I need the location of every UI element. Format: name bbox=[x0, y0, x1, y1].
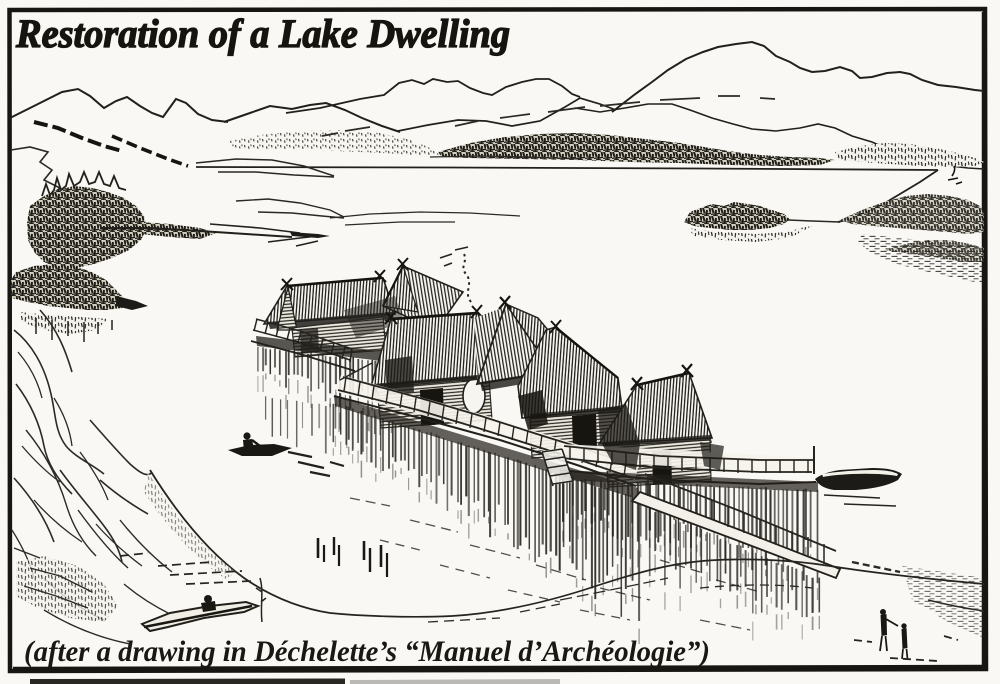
svg-text:(after a drawing in Déchelette: (after a drawing in Déchelette’s “Manuel… bbox=[24, 635, 710, 668]
svg-text:Restoration of a Lake Dwelling: Restoration of a Lake Dwelling bbox=[15, 11, 510, 56]
